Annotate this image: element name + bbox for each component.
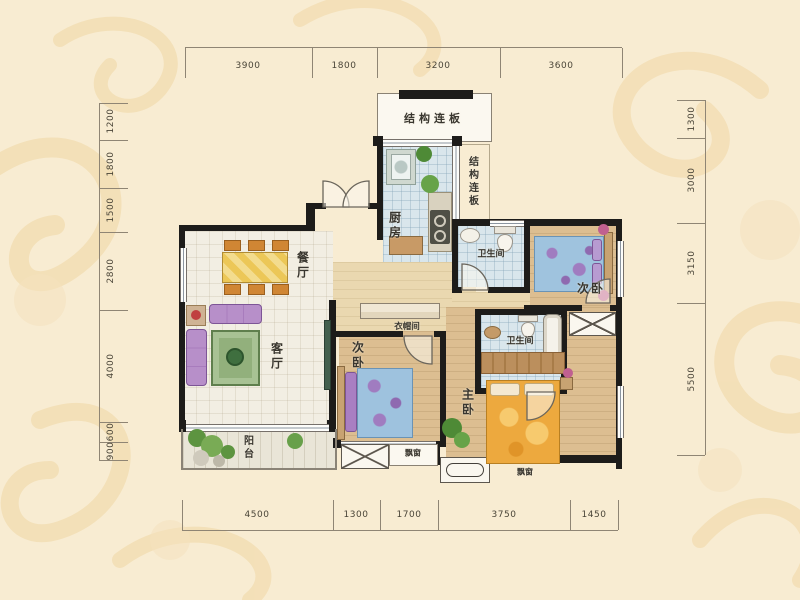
tv-cabinet	[324, 320, 331, 390]
wall-segment	[452, 219, 622, 226]
pillow	[490, 383, 520, 396]
bay-window-platform	[569, 312, 616, 336]
bed-headboard	[604, 232, 613, 294]
toilet-tank	[518, 315, 538, 322]
rug-plant	[226, 348, 244, 366]
dim-tick	[377, 48, 378, 78]
label-cloakroom: 衣帽间	[394, 320, 420, 332]
structure-slab-bar	[399, 90, 473, 99]
dining-chair	[224, 240, 241, 251]
dim-top-4: 3600	[549, 61, 574, 71]
bay-window-platform	[341, 444, 389, 469]
floor-plan: 3900 1800 3200 3600 4500 1300 1700 3750 …	[0, 0, 800, 600]
dim-tick	[677, 138, 705, 139]
sofa	[209, 304, 262, 324]
flower-pot	[191, 310, 201, 320]
bed-secondary-2	[357, 368, 413, 438]
wall-segment	[377, 140, 383, 240]
bed-master-duvet	[488, 398, 558, 462]
sofa-chaise	[186, 329, 207, 386]
bay-window-seat-cushion	[446, 463, 484, 477]
dining-chair	[248, 240, 265, 251]
label-balcony: 阳台	[240, 435, 255, 461]
label-bath-top: 卫生间	[477, 247, 504, 260]
dim-left-5: 4000	[106, 354, 116, 379]
wall-segment	[373, 136, 383, 146]
label-kitchen: 厨房	[387, 211, 404, 241]
dim-bottom-1: 4500	[245, 510, 270, 520]
floor-balcony	[183, 429, 335, 469]
wall-segment	[524, 225, 530, 287]
dim-bottom-3: 1700	[397, 510, 422, 520]
dim-tick	[99, 188, 128, 189]
sink	[460, 228, 480, 243]
window	[617, 386, 624, 438]
wall-segment	[440, 331, 446, 447]
dim-line-left	[99, 103, 100, 460]
dim-tick	[333, 500, 334, 530]
dim-top-2: 1800	[332, 61, 357, 71]
wall-segment	[452, 136, 462, 146]
dim-tick	[570, 500, 571, 530]
pillow	[592, 239, 602, 261]
floor-plan-page: { "plan_type": "apartment-floor-plan", "…	[0, 0, 800, 600]
bed-headboard	[337, 366, 345, 440]
dim-tick	[438, 500, 439, 530]
pillow	[345, 372, 357, 432]
dim-tick	[677, 455, 705, 456]
dim-tick	[99, 103, 128, 104]
dim-tick	[677, 303, 705, 304]
dim-tick	[99, 310, 128, 311]
dim-right-4: 5500	[687, 367, 697, 392]
dim-right-2: 3000	[687, 168, 697, 193]
dim-left-7: 900	[106, 442, 116, 461]
dining-table	[222, 252, 288, 283]
dim-left-2: 1800	[106, 152, 116, 177]
dim-tick	[380, 500, 381, 530]
dim-tick	[677, 223, 705, 224]
wall-segment	[488, 287, 530, 293]
dim-tick	[500, 48, 501, 78]
entry-door-leaf	[323, 181, 349, 207]
dim-left-4: 2800	[106, 259, 116, 284]
wall-segment	[452, 287, 462, 293]
label-structure-top: 结构连板	[404, 110, 464, 126]
dim-tick	[185, 48, 186, 78]
dim-left-6: 600	[106, 423, 116, 442]
label-dining: 餐厅	[295, 251, 312, 281]
dim-left-3: 1500	[106, 198, 116, 223]
stove-burner	[434, 215, 446, 227]
dim-line-right	[705, 100, 706, 455]
label-bedroom-middle: 次卧	[350, 341, 367, 371]
wall-segment	[610, 305, 622, 311]
sliding-door-balcony	[186, 424, 329, 432]
dim-tick	[312, 48, 313, 78]
dim-tick	[677, 100, 705, 101]
nightstand-flower	[598, 224, 609, 235]
bay-window-seat	[440, 457, 490, 483]
label-living: 客厅	[269, 342, 286, 372]
dining-chair	[272, 240, 289, 251]
dim-bottom-4: 3750	[492, 510, 517, 520]
sink	[484, 326, 501, 339]
nightstand	[560, 377, 573, 390]
dim-tick	[99, 140, 128, 141]
balcony-wall	[181, 429, 183, 470]
balcony-wall	[181, 468, 337, 470]
dim-right-1: 1300	[687, 107, 697, 132]
dim-tick	[182, 500, 183, 530]
label-bay-window-1: 飘窗	[405, 448, 421, 459]
kitchen-sink	[391, 154, 411, 180]
cloakroom-closet	[360, 303, 440, 319]
wall-segment	[179, 225, 313, 231]
stove-burner	[434, 230, 446, 242]
window	[617, 241, 624, 297]
wall-segment	[452, 225, 458, 287]
entry-door-leaf	[343, 181, 369, 207]
dining-chair	[248, 284, 265, 295]
dim-tick	[622, 48, 623, 78]
wall-segment	[306, 203, 326, 209]
dim-tick	[618, 500, 619, 530]
dim-line-top	[185, 47, 622, 48]
dim-bottom-2: 1300	[344, 510, 369, 520]
window	[452, 146, 460, 219]
toilet-tank	[494, 226, 516, 234]
dining-chair	[224, 284, 241, 295]
dim-top-1: 3900	[236, 61, 261, 71]
dim-right-3: 3150	[687, 251, 697, 276]
dim-line-bottom	[182, 530, 618, 531]
dim-left-1: 1200	[106, 109, 116, 134]
nightstand-flower	[563, 368, 573, 378]
window	[383, 139, 452, 147]
label-bedroom-top-right: 次卧	[577, 280, 605, 297]
wardrobe	[481, 352, 565, 374]
label-structure-side: 结构连板	[465, 156, 480, 208]
dining-chair	[272, 284, 289, 295]
pillow	[524, 383, 554, 396]
label-bath-master: 卫生间	[506, 334, 533, 347]
dim-top-3: 3200	[426, 61, 451, 71]
label-bay-window-2: 飘窗	[517, 467, 533, 478]
wall-segment	[333, 331, 403, 337]
window	[180, 248, 187, 302]
label-master-bedroom: 主卧	[460, 388, 477, 418]
dim-bottom-5: 1450	[582, 510, 607, 520]
dim-tick	[99, 232, 128, 233]
